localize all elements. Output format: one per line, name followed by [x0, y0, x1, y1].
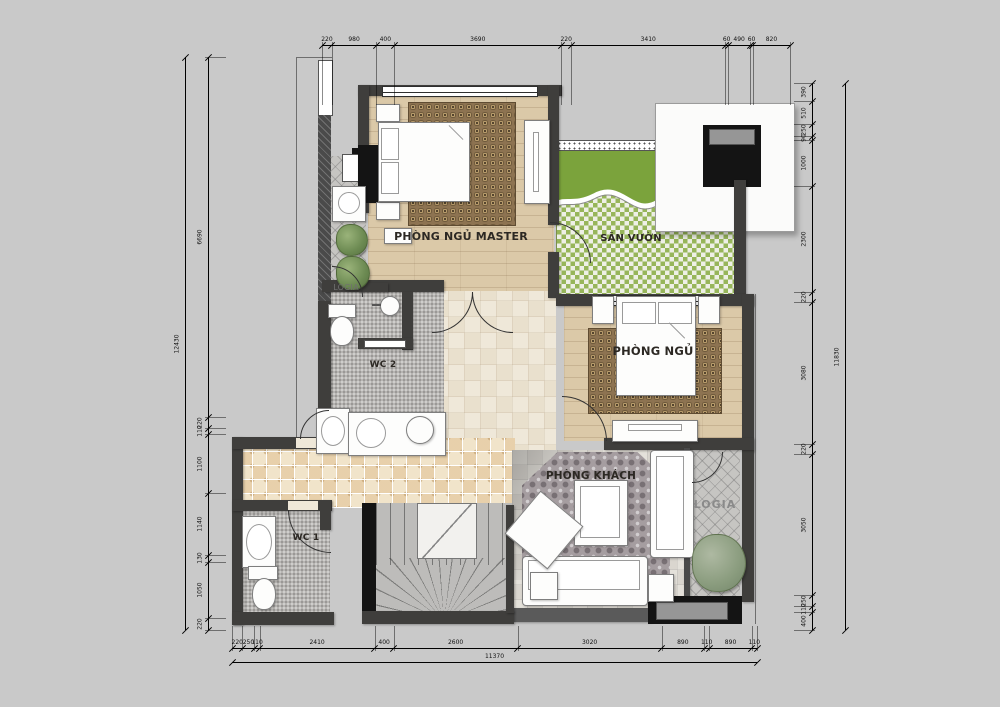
dim-num: 820 — [766, 36, 777, 43]
room-label-master-bedroom: PHÒNG NGỦ MASTER — [368, 230, 554, 243]
dim-num: 400 — [380, 36, 391, 43]
dim-num: 490 — [733, 36, 744, 43]
wc1-sink-bowl — [246, 524, 272, 560]
dim-wit — [332, 42, 333, 105]
dim-wit — [725, 42, 726, 105]
dim-num: 890 — [677, 639, 688, 646]
dim-wit — [205, 618, 226, 619]
dim-wit — [394, 626, 395, 651]
master-nightstand-bottom — [376, 202, 400, 220]
master-window — [382, 86, 538, 97]
bedroom-nightstand-right — [698, 296, 720, 324]
wc2-sink — [380, 296, 400, 316]
washing-machine-drum — [338, 192, 360, 214]
wall-stairs-left — [362, 503, 376, 613]
floor-plan-canvas: PHÒNG NGỦ MASTER SÂN VƯỜN PHÒNG NGỦ PHÒN… — [0, 0, 1000, 707]
dim-wit — [205, 555, 226, 556]
entry-door — [300, 410, 329, 439]
room-label-living-room: PHÒNG KHÁCH — [516, 470, 666, 482]
dim-num: 2410 — [309, 639, 324, 646]
master-nightstand-top — [376, 104, 400, 122]
dim-num: 220 — [801, 444, 808, 455]
dim-line — [812, 83, 813, 630]
dim-num: 11370 — [485, 653, 504, 660]
dim-num: 220 — [560, 36, 571, 43]
living-planter-inset — [656, 602, 728, 620]
wc2-toilet-bowl — [330, 316, 354, 346]
dim-wit — [205, 57, 226, 58]
dim-num: 220 — [321, 36, 332, 43]
dim-num: 12430 — [174, 334, 181, 353]
dim-num: 400 — [378, 639, 389, 646]
dim-wit — [794, 630, 815, 631]
wall-hatched — [318, 115, 331, 301]
wall-stairs-living — [506, 505, 514, 613]
dim-num: 2300 — [801, 232, 808, 247]
dim-num: 110 — [749, 639, 760, 646]
wall-garden-right — [734, 180, 746, 300]
wall-line-upper-left-h — [296, 57, 332, 58]
dim-line — [845, 83, 846, 630]
dim-line — [185, 57, 186, 630]
room-label-wc2: WC 2 — [322, 360, 444, 370]
dim-num: 510 — [801, 107, 808, 118]
room-label-logia-left: LOGIA — [324, 283, 368, 292]
dim-line — [208, 57, 209, 630]
plant-logia-left-1 — [336, 224, 368, 256]
room-label-bedroom: PHÒNG NGỦ — [564, 344, 742, 358]
dim-wit — [794, 83, 815, 84]
dim-num: 60 — [723, 36, 731, 43]
wall-wc1-bottom — [232, 612, 334, 625]
room-label-logia-right: LOGIA — [688, 498, 742, 511]
master-pillow-1 — [381, 128, 399, 160]
dim-num: 3020 — [582, 639, 597, 646]
wc2-faucet — [372, 304, 381, 306]
duct-box — [318, 60, 333, 116]
dim-wit — [205, 562, 226, 563]
dim-num: 90 — [801, 134, 808, 142]
dim-num: 130 — [197, 553, 204, 564]
dim-num: 1050 — [197, 582, 204, 597]
dim-num: 110 — [251, 639, 262, 646]
dim-wit — [205, 434, 226, 435]
dim-num: 110 — [801, 603, 808, 614]
stair-winders — [376, 558, 512, 613]
bedroom-pillow-2 — [658, 302, 692, 324]
wc1-door-gap — [288, 501, 318, 510]
dim-num: 1140 — [197, 516, 204, 531]
plant-logia-right — [692, 534, 746, 592]
dim-num: 3050 — [801, 517, 808, 532]
side-table-left — [530, 572, 558, 600]
dim-num: 1000 — [801, 156, 808, 171]
dim-wit — [205, 417, 226, 418]
dim-wit — [376, 42, 377, 105]
dim-num: 1100 — [197, 456, 204, 471]
dim-num: 2600 — [448, 639, 463, 646]
dim-num: 6690 — [197, 229, 204, 244]
dim-wit — [205, 493, 226, 494]
dim-wit — [205, 630, 226, 631]
dim-num: 11830 — [834, 347, 841, 366]
coffee-table-top — [580, 486, 620, 538]
dim-line — [232, 648, 757, 649]
stair-void — [417, 503, 477, 559]
bedroom-pillow-1 — [622, 302, 656, 324]
tv-set — [628, 424, 682, 431]
dim-wit — [750, 42, 751, 105]
dim-wit — [518, 626, 519, 651]
wc2-shower-shelf — [364, 340, 406, 348]
dim-num: 980 — [348, 36, 359, 43]
wall-living-bottom — [512, 608, 652, 622]
dim-wit — [561, 42, 562, 105]
dim-wit — [790, 42, 791, 105]
wc1-toilet-bowl — [252, 578, 276, 610]
outer-line-right — [755, 294, 756, 624]
dim-num: 890 — [725, 639, 736, 646]
dim-num: 110 — [701, 639, 712, 646]
wall-line-upper-left-v — [296, 57, 297, 437]
dim-wit — [662, 626, 663, 651]
dim-num: 400 — [801, 615, 808, 626]
wall-logia-right — [742, 450, 754, 602]
dim-num: 220 — [232, 639, 243, 646]
bedroom-nightstand-left — [592, 296, 614, 324]
dim-wit — [205, 428, 226, 429]
master-pillow-2 — [381, 162, 399, 194]
wc2-vanity-basin — [356, 418, 386, 448]
wall-stairs-bottom — [362, 611, 514, 624]
wc2-stool — [406, 416, 434, 444]
master-wardrobe-handle — [533, 132, 539, 192]
room-label-wc1: WC 1 — [271, 533, 341, 543]
dim-line — [232, 662, 757, 663]
side-table-right — [648, 574, 674, 602]
dim-wit — [728, 42, 729, 105]
dim-num: 3410 — [641, 36, 656, 43]
dim-wit — [794, 101, 815, 102]
dim-num: 3080 — [801, 366, 808, 381]
dim-wit — [322, 42, 323, 105]
dim-num: 60 — [748, 36, 756, 43]
dim-num: 390 — [801, 86, 808, 97]
dim-wit — [753, 42, 754, 105]
dim-num: 110 — [197, 426, 204, 437]
dim-wit — [375, 626, 376, 651]
dim-wit — [794, 186, 815, 187]
dim-num: 220 — [197, 618, 204, 629]
dim-num: 3690 — [470, 36, 485, 43]
dim-num: 220 — [801, 292, 808, 303]
garden-planter-inset — [709, 129, 755, 145]
dim-wit — [394, 42, 395, 105]
room-label-garden: SÂN VƯỜN — [556, 233, 706, 244]
wall-bedroom-right — [742, 294, 754, 452]
dim-wit — [571, 42, 572, 105]
